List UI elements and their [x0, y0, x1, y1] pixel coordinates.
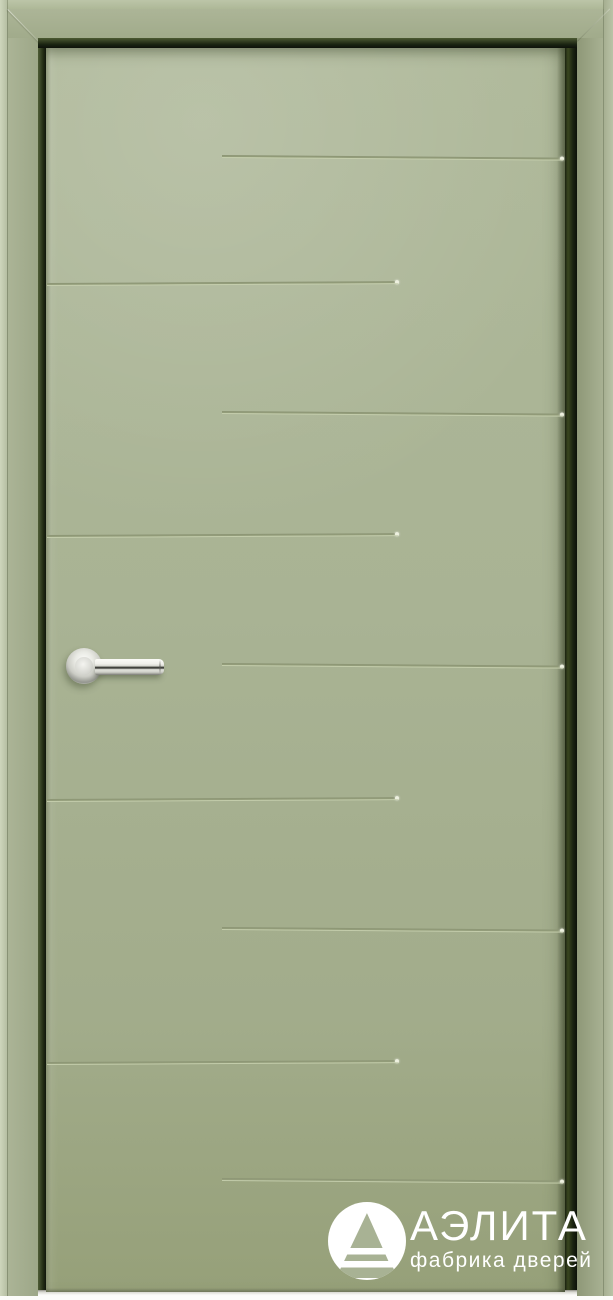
door-groove: [222, 927, 563, 932]
frame-top-edge: [0, 0, 613, 9]
door-groove: [47, 1060, 398, 1064]
frame-right-casing: [577, 9, 603, 1300]
frame-top-casing: [8, 9, 603, 38]
door-groove: [47, 797, 398, 801]
door-product-photo: АЭЛИТА фабрика дверей: [0, 0, 613, 1300]
brand-tagline: фабрика дверей: [410, 1249, 593, 1272]
door-groove: [222, 155, 563, 160]
door-bottom-shadow: [46, 1288, 565, 1292]
brand-name: АЭЛИТА: [410, 1204, 593, 1248]
frame-left-casing: [8, 9, 38, 1300]
door-leaf: [46, 48, 565, 1292]
door-groove: [222, 1178, 563, 1183]
door-handle: [46, 48, 565, 1292]
door-leaf-left-bevel: [46, 48, 51, 1292]
door-groove: [47, 533, 398, 537]
floor-strip: [0, 1296, 613, 1300]
frame-right-edge: [604, 0, 613, 1300]
frame-left-edge: [0, 0, 7, 1300]
door-groove: [222, 663, 563, 668]
frame-right-seam: [603, 0, 604, 1300]
brand-logo: АЭЛИТА фабрика дверей: [328, 1202, 593, 1280]
frame-door-gap-top: [38, 38, 577, 48]
door-groove: [222, 411, 563, 416]
door-groove: [47, 281, 398, 285]
logo-mark-icon: [328, 1202, 406, 1280]
handle-lever: [95, 659, 164, 675]
brand-text-block: АЭЛИТА фабрика дверей: [410, 1202, 593, 1272]
door-leaf-right-bevel: [557, 48, 565, 1292]
handle-rosette: [66, 648, 102, 684]
